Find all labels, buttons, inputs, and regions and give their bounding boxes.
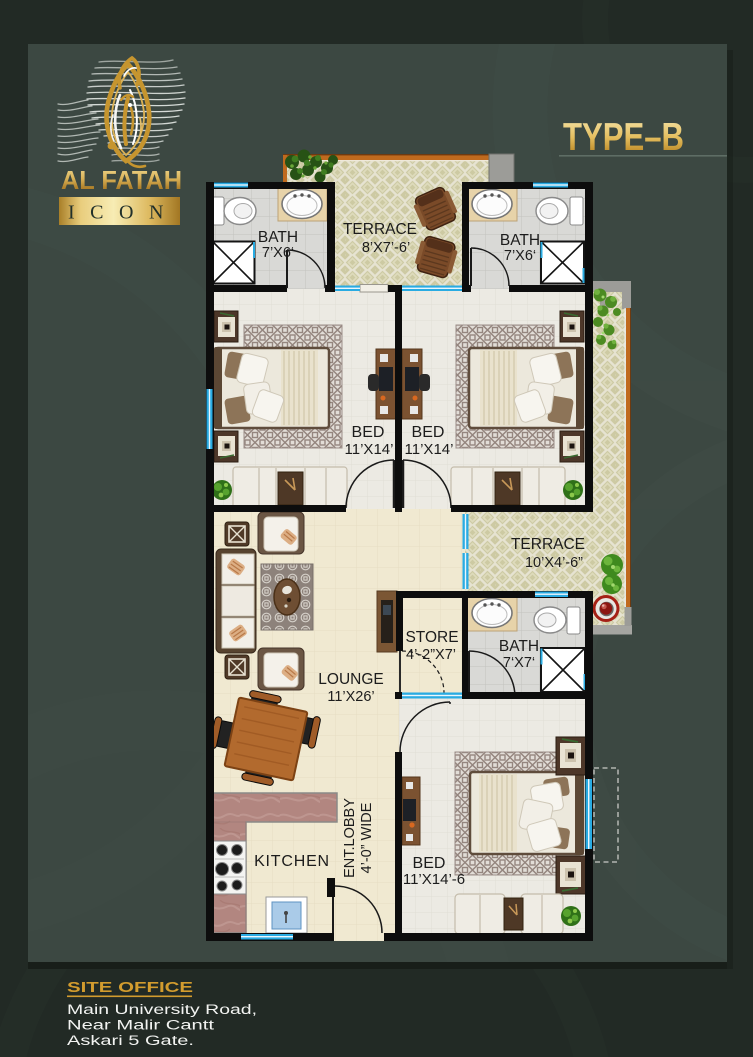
svg-text:11’X14’: 11’X14’: [345, 441, 394, 458]
svg-text:BED: BED: [352, 424, 385, 441]
svg-text:TERRACE: TERRACE: [511, 536, 585, 553]
svg-text:BATH: BATH: [258, 229, 298, 246]
svg-text:7’X6‘: 7’X6‘: [504, 248, 536, 264]
svg-text:STORE: STORE: [405, 629, 458, 646]
svg-text:11’X26’: 11’X26’: [327, 689, 374, 705]
svg-text:KITCHEN: KITCHEN: [254, 853, 330, 870]
svg-text:7’X6‘: 7’X6‘: [262, 245, 294, 261]
svg-text:4’-0” WIDE: 4’-0” WIDE: [359, 802, 375, 873]
svg-text:TYPE–B: TYPE–B: [563, 116, 684, 159]
svg-text:TERRACE: TERRACE: [343, 221, 417, 238]
svg-text:ENT.LOBBY: ENT.LOBBY: [342, 798, 358, 878]
svg-text:AL FATAH: AL FATAH: [61, 165, 182, 195]
svg-text:7‘X7‘: 7‘X7‘: [503, 655, 535, 671]
svg-text:11’X14’: 11’X14’: [405, 441, 454, 458]
svg-text:LOUNGE: LOUNGE: [318, 671, 383, 688]
svg-text:8’X7’-6’: 8’X7’-6’: [362, 240, 410, 256]
svg-text:BATH: BATH: [500, 232, 540, 249]
svg-text:Main University Road,: Main University Road,: [67, 1002, 257, 1017]
svg-text:BATH: BATH: [499, 638, 539, 655]
svg-text:Near Malir Cantt: Near Malir Cantt: [67, 1018, 214, 1033]
svg-text:11’X14’-6: 11’X14’-6: [403, 871, 465, 888]
svg-text:Askari 5 Gate.: Askari 5 Gate.: [67, 1033, 194, 1048]
svg-text:BED: BED: [412, 424, 445, 441]
svg-text:BED: BED: [413, 855, 446, 872]
svg-text:SITE OFFICE: SITE OFFICE: [67, 980, 193, 996]
svg-text:ICON: ICON: [68, 202, 179, 224]
svg-text:4’-2”X7’: 4’-2”X7’: [406, 647, 456, 663]
svg-text:10’X4’-6”: 10’X4’-6”: [525, 555, 583, 571]
